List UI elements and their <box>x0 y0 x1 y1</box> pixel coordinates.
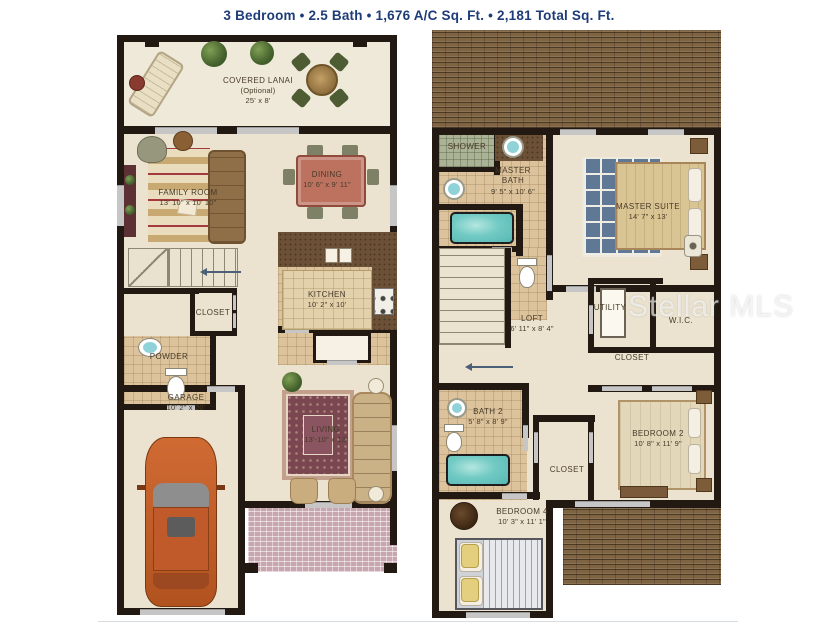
sink-basin <box>448 183 460 195</box>
sliding-door <box>237 127 299 134</box>
stair-landing <box>128 248 168 287</box>
room-label-loft: LOFT 6' 11" x 8' 4" <box>492 314 572 334</box>
room-label-bedroom2: BEDROOM 2 10' 8" x 11' 9" <box>613 429 703 449</box>
room-name: KITCHEN <box>282 290 372 300</box>
room-label-bed-closet: CLOSET <box>537 465 597 475</box>
nightstand <box>696 390 712 404</box>
car-sunroof <box>167 517 195 537</box>
car-windshield <box>153 483 209 507</box>
room-name: BEDROOM 2 <box>613 429 703 439</box>
bifold-door <box>652 386 692 391</box>
potted-plant <box>201 41 227 67</box>
room-label-kitchen: KITCHEN 10' 2" x 10' <box>282 290 372 310</box>
yellow-pillow <box>461 544 479 568</box>
room-dims: 10' 8" x 11' 9" <box>613 439 703 449</box>
room-dims: 10' 2" x 10' <box>282 300 372 310</box>
porch-post <box>384 563 397 573</box>
side-table <box>368 378 384 394</box>
room-dims: 13' 10" x 10' 10" <box>138 198 238 208</box>
room-label-closet: CLOSET <box>183 308 243 318</box>
lanai-post <box>145 35 159 47</box>
kitchen-sink <box>325 248 338 263</box>
room-dims: 9' 5" x 10' 6" <box>484 187 542 197</box>
side-table <box>129 75 145 91</box>
yellow-pillow <box>461 578 479 602</box>
potted-plant <box>450 502 478 530</box>
room-note: (Optional) <box>200 86 316 96</box>
room-name: FAMILY ROOM <box>138 188 238 198</box>
room-dims: 14' 7" x 13' <box>598 212 698 222</box>
living-armchair <box>328 478 356 504</box>
pillow <box>688 168 702 202</box>
nightstand <box>696 478 712 492</box>
garage-entry-door <box>207 386 235 392</box>
room-label-shower: SHOWER <box>439 142 495 152</box>
room-name: CLOSET <box>183 308 243 318</box>
bifold-door <box>602 386 642 391</box>
second-floor-plan: SHOWER MASTER BATH 9' 5" x 10' 6" MASTER… <box>432 30 721 620</box>
footer-divider <box>98 621 738 622</box>
room-label-family: FAMILY ROOM 13' 10" x 10' 10" <box>138 188 238 208</box>
room-label-powder: POWDER <box>139 352 199 362</box>
entry-porch-pavers <box>248 508 397 572</box>
room-name: COVERED LANAI <box>200 76 316 86</box>
room-label-bedroom4: BEDROOM 4 10' 3" x 11' 1" <box>477 507 567 527</box>
room-label-garage: GARAGE 10' 2" x 20' <box>136 393 236 413</box>
car-mirror <box>137 485 146 490</box>
side-table <box>368 486 384 502</box>
bath2-door <box>523 425 528 451</box>
car-mirror <box>216 485 225 490</box>
potted-plant <box>250 41 274 65</box>
dining-chair <box>342 207 358 219</box>
page-title: 3 Bedroom • 2.5 Bath • 1,676 A/C Sq. Ft.… <box>0 8 838 23</box>
toilet-bowl <box>519 266 535 288</box>
mls-watermark: Stellar MLS <box>628 292 794 322</box>
dining-chair <box>307 207 323 219</box>
stair-direction-arrow <box>203 271 241 273</box>
stair-direction-arrow <box>468 366 513 368</box>
wall <box>432 128 439 618</box>
room-dims: 13'-10" x 13' <box>281 435 371 445</box>
roof-top <box>432 30 721 128</box>
room-dims: 5' 8" x 8' 9" <box>448 417 528 427</box>
room-name: POWDER <box>139 352 199 362</box>
wall <box>117 35 124 615</box>
potted-plant <box>282 372 302 392</box>
room-name: CLOSET <box>537 465 597 475</box>
window <box>390 185 397 226</box>
chair <box>684 235 702 257</box>
window <box>648 129 684 135</box>
room-name: GARAGE <box>136 393 236 403</box>
toilet-tank <box>165 368 187 376</box>
wall <box>390 508 397 545</box>
garage-door <box>140 609 225 615</box>
room-label-dining: DINING 10' 6" x 9' 11" <box>282 170 372 190</box>
car-rear-window <box>153 573 209 589</box>
dresser <box>620 486 668 498</box>
room-name: MASTER BATH <box>490 166 536 187</box>
room-dims: 6' 11" x 8' 4" <box>492 324 572 334</box>
window <box>466 612 530 618</box>
round-table <box>173 131 193 151</box>
wall <box>238 385 245 615</box>
room-name: CLOSET <box>602 353 662 363</box>
toilet-tank <box>517 258 537 266</box>
nightstand <box>690 138 708 154</box>
room-name: LOFT <box>492 314 572 324</box>
kitchen-sink <box>339 248 352 263</box>
toilet-bowl <box>446 432 462 452</box>
bed-blanket <box>483 540 541 608</box>
window <box>575 501 650 507</box>
window <box>117 185 124 226</box>
room-dims: 10' 3" x 11' 1" <box>477 517 567 527</box>
room-label-living: LIVING 13'-10" x 13' <box>281 425 371 445</box>
room-label-master-bath: MASTER BATH 9' 5" x 10' 6" <box>484 166 542 197</box>
room-label-hall-closet: CLOSET <box>602 353 662 363</box>
room-label-bath2: BATH 2 5' 8" x 8' 9" <box>448 407 528 427</box>
shelf-plant <box>125 205 135 215</box>
shelf-plant <box>125 175 135 185</box>
room-name: MASTER SUITE <box>598 202 698 212</box>
living-armchair <box>290 478 318 504</box>
stove <box>374 288 394 315</box>
closet-wall <box>190 288 237 293</box>
kitchen-counter <box>372 232 397 330</box>
floorplan-canvas: 3 Bedroom • 2.5 Bath • 1,676 A/C Sq. Ft.… <box>0 0 838 629</box>
room-label-master-suite: MASTER SUITE 14' 7" x 13' <box>598 202 698 222</box>
room-dims: 10' 6" x 9' 11" <box>282 180 372 190</box>
wall <box>124 288 199 294</box>
first-floor-plan: COVERED LANAI (Optional) 25' x 8' FAMILY… <box>117 35 397 615</box>
closet-door <box>327 360 357 365</box>
utility-closet-box <box>313 333 371 363</box>
wall <box>439 383 529 390</box>
armchair <box>137 136 167 163</box>
bathtub <box>450 212 514 244</box>
wall <box>439 204 521 210</box>
bathtub <box>446 454 510 486</box>
bifold-door <box>534 432 538 463</box>
room-name: LIVING <box>281 425 371 435</box>
room-name: BEDROOM 4 <box>477 507 567 517</box>
room-name: BATH 2 <box>448 407 528 417</box>
porch-post <box>245 563 258 573</box>
room-dims: 25' x 8' <box>200 96 316 106</box>
bifold-door <box>589 432 593 463</box>
room-name: SHOWER <box>439 142 495 152</box>
window <box>560 129 596 135</box>
sink-basin <box>507 141 519 153</box>
lanai-post <box>353 35 367 47</box>
room-name: DINING <box>282 170 372 180</box>
master-door <box>547 255 552 291</box>
room-label-lanai: COVERED LANAI (Optional) 25' x 8' <box>200 76 316 106</box>
closet-wall <box>533 415 595 422</box>
roof-bottom <box>563 508 721 585</box>
room-dims: 10' 2" x 20' <box>136 403 236 413</box>
door-opening <box>502 493 527 499</box>
